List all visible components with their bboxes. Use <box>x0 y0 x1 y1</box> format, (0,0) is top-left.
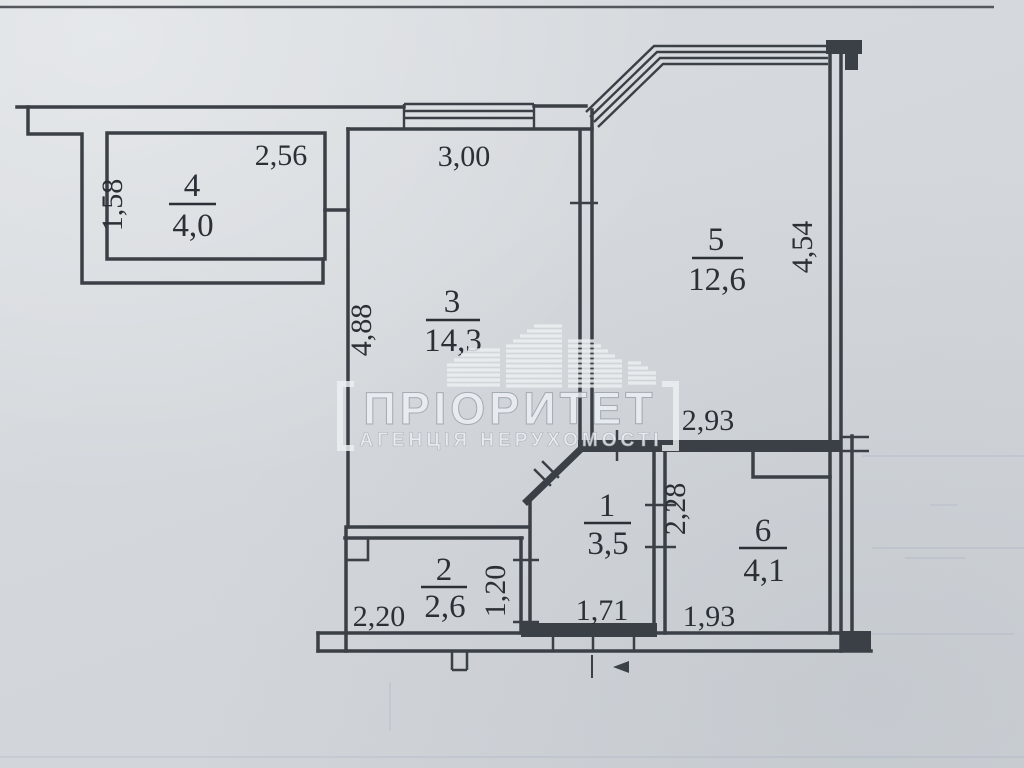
room-5-number: 5 <box>708 222 725 258</box>
dim-room4-top: 2,56 <box>255 139 308 172</box>
entrance-mark <box>592 655 629 678</box>
room-4-area: 4,0 <box>172 208 213 244</box>
room-6-number: 6 <box>755 513 772 549</box>
dim-room3-left: 4,88 <box>345 304 378 357</box>
room-4-number: 4 <box>184 168 201 204</box>
dim-room5-right: 4,54 <box>786 221 819 274</box>
dim-room6-left: 2,28 <box>659 483 692 536</box>
dim-room4-left: 1,58 <box>96 179 129 232</box>
watermark-brand-text: ПРІОРИТЕТ <box>363 383 656 434</box>
wall-bay-corner-a <box>826 40 862 54</box>
room-2-number: 2 <box>436 552 453 588</box>
watermark-bracket-right <box>662 384 676 448</box>
wall-room6-notch <box>753 452 830 477</box>
wall-bottom-right-corner <box>841 631 871 651</box>
scan-artifact-lines <box>0 456 1024 757</box>
room-3-number: 3 <box>444 284 461 320</box>
dim-room6-bottom: 1,93 <box>683 600 736 633</box>
wall-chamfer-door <box>527 447 583 501</box>
dim-room2-bottom: 2,20 <box>353 600 406 633</box>
room-1-area: 3,5 <box>587 526 628 562</box>
entrance-arrow-icon <box>613 661 629 673</box>
room-1-number: 1 <box>599 488 616 524</box>
agency-watermark: ПРІОРИТЕТ АГЕНЦІЯ НЕРУХОМОСТІ <box>340 326 676 451</box>
window-band-room3 <box>404 104 534 129</box>
room-5-area: 12,6 <box>688 262 746 298</box>
duct-room2 <box>346 538 368 560</box>
dim-room5-bottom: 2,93 <box>682 404 735 437</box>
room-2-area: 2,6 <box>424 589 465 625</box>
dim-room2-right: 1,20 <box>479 565 512 618</box>
watermark-tagline-text: АГЕНЦІЯ НЕРУХОМОСТІ <box>359 430 662 451</box>
dim-room1-bottom: 1,71 <box>576 594 629 627</box>
floor-plan-svg: 4 4,0 3 14,3 5 12,6 1 3,5 2 2,6 6 4,1 2,… <box>0 0 1024 768</box>
room-6-area: 4,1 <box>743 553 784 589</box>
bay-window <box>586 46 828 127</box>
dim-room3-top: 3,00 <box>438 140 491 173</box>
wall-bay-corner-b <box>845 52 858 70</box>
floor-plan-scan: 4 4,0 3 14,3 5 12,6 1 3,5 2 2,6 6 4,1 2,… <box>0 0 1024 768</box>
